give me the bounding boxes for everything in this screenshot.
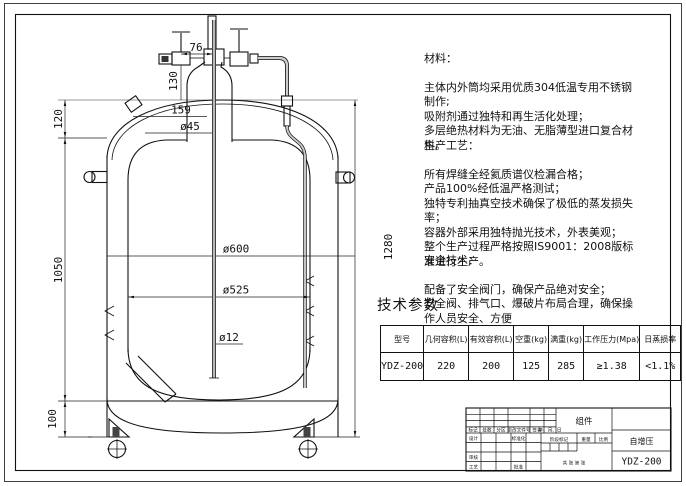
dim-outer-dia: ø600 <box>223 243 250 256</box>
drawing-sheet: 76 130 120 159 ø45 1050 1280 ø600 ø525 ø… <box>0 0 686 486</box>
notes-material-title: 材料： <box>424 52 639 67</box>
support-pad-marks <box>105 276 314 346</box>
spec-cell: 200 <box>469 353 514 381</box>
rev-col-count: 处数 <box>482 427 492 434</box>
spec-col-header: 几何容积(L) <box>424 326 469 353</box>
dimension-lines <box>64 53 357 437</box>
dim-inner-dia: ø525 <box>223 284 250 297</box>
spec-col-header: 满重(kg) <box>549 326 584 353</box>
vessel-inner-shell <box>105 140 314 402</box>
rev-col-zone: 分区 <box>496 427 506 434</box>
notes-process-title: 生产工艺： <box>424 139 639 154</box>
spec-cell: 220 <box>424 353 469 381</box>
spec-table-title: 技术参数 <box>377 294 439 315</box>
dim-120: 120 <box>52 109 65 129</box>
title-block: 组件 自增压 YDZ-200 标记 处数 分区 更改文件号 签名 年、月、日 设… <box>466 408 671 471</box>
dim-130: 130 <box>167 71 180 91</box>
safety-valve-port <box>125 96 142 112</box>
title-model: YDZ-200 <box>621 457 661 468</box>
rev-col-docno: 更改文件号 <box>508 427 531 434</box>
right-valve <box>224 29 258 66</box>
notes-safety-title: 安全技术： <box>424 254 639 269</box>
spec-table-body: 型号几何容积(L)有效容积(L)空重(kg)满重(kg)工作压力(Mpa)日蒸损… <box>381 326 681 381</box>
sheet-count-label: 共 张 第 张 <box>563 460 586 467</box>
rev-col-mark: 标记 <box>468 427 478 434</box>
title-part-name: 组件 <box>575 416 593 427</box>
left-caster <box>107 419 129 459</box>
gauge-port <box>162 56 169 62</box>
spec-col-header: 日蒸损率 <box>640 326 681 353</box>
right-caster <box>294 419 318 459</box>
spec-cell: 285 <box>549 353 584 381</box>
dim-100: 100 <box>46 409 59 429</box>
spec-col-header: 空重(kg) <box>514 326 549 353</box>
role-approve: 批准 <box>514 464 524 471</box>
spec-col-header: 型号 <box>381 326 424 353</box>
dim-159: 159 <box>171 104 191 117</box>
notes-safety-body: 配备了安全阀门，确保产品绝对安全； 安全阀、排气口、爆破片布局合理，确保操 作人… <box>424 283 639 327</box>
spec-table-wrap: 型号几何容积(L)有效容积(L)空重(kg)满重(kg)工作压力(Mpa)日蒸损… <box>380 325 681 381</box>
role-review: 审核 <box>469 454 479 461</box>
left-handle <box>84 172 107 183</box>
spec-col-header: 有效容积(L) <box>469 326 514 353</box>
title-series-name: 自增压 <box>630 436 654 446</box>
dim-neck-dia: ø45 <box>180 120 200 133</box>
role-standard: 标准化 <box>512 435 526 442</box>
rev-col-date: 年、月、日 <box>539 427 562 434</box>
spec-row: YDZ-200220200125285≥1.38<1.1% <box>381 353 681 381</box>
dip-tube <box>209 20 219 378</box>
spec-cell: <1.1% <box>640 353 681 381</box>
role-design: 设计 <box>469 435 479 442</box>
spec-cell: ≥1.38 <box>584 353 640 381</box>
stage-mark-label: 阶段标记 <box>550 436 569 443</box>
construction-lines <box>58 100 360 437</box>
spec-col-header: 工作压力(Mpa) <box>584 326 640 353</box>
spec-cell: 125 <box>514 353 549 381</box>
spec-table: 型号几何容积(L)有效容积(L)空重(kg)满重(kg)工作压力(Mpa)日蒸损… <box>380 325 681 381</box>
dim-1050: 1050 <box>52 257 65 284</box>
dimension-labels: 76 130 120 159 ø45 1050 1280 ø600 ø525 ø… <box>46 41 395 429</box>
role-process: 工艺 <box>469 465 479 471</box>
weight-label: 重量 <box>581 436 591 443</box>
right-handle <box>336 172 355 183</box>
spec-cell: YDZ-200 <box>381 353 424 381</box>
dim-76: 76 <box>189 41 202 54</box>
scale-label: 比例 <box>599 436 609 443</box>
dim-1280: 1280 <box>382 234 395 261</box>
dim-tube-dia: ø12 <box>219 331 239 344</box>
